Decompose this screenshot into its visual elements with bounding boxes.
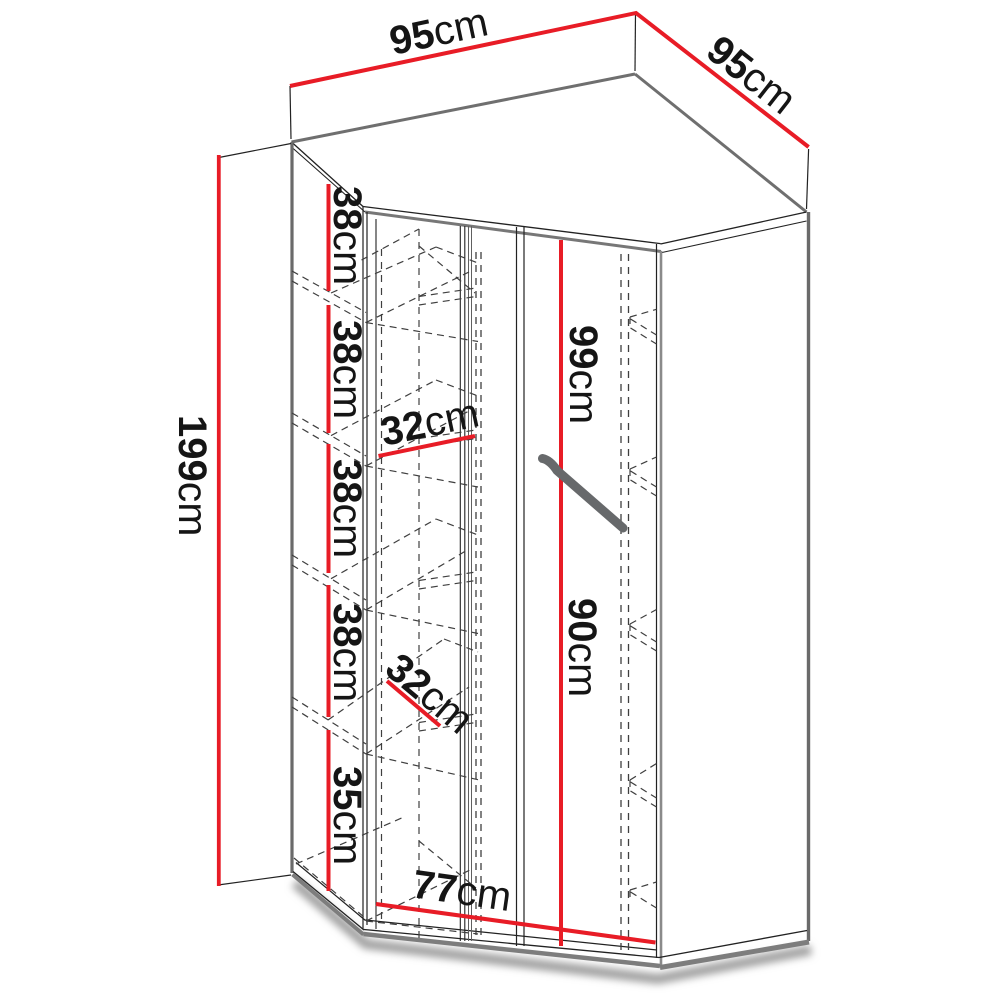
svg-text:90cm: 90cm	[560, 598, 606, 697]
svg-text:38cm: 38cm	[325, 603, 371, 702]
svg-text:38cm: 38cm	[325, 459, 371, 558]
svg-text:38cm: 38cm	[325, 320, 371, 419]
svg-text:35cm: 35cm	[325, 766, 371, 865]
svg-text:99cm: 99cm	[561, 325, 607, 424]
svg-text:38cm: 38cm	[325, 186, 371, 285]
svg-text:199cm: 199cm	[170, 415, 216, 536]
